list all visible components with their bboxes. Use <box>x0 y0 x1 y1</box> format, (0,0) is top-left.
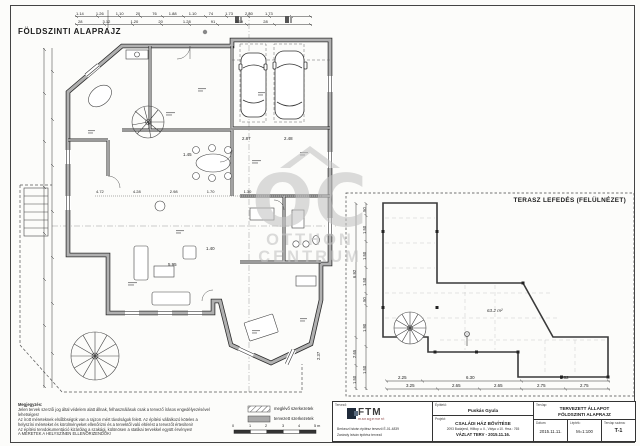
title-block: Tervező: FTM management Berkeczi István … <box>332 401 636 442</box>
scale-bar <box>234 430 316 433</box>
scale-tick: 5 m <box>314 424 320 428</box>
client-label: Építtető: <box>435 403 447 407</box>
notes-block: Megjegyzés: Jelen tervek szerzői jog ált… <box>18 403 230 437</box>
terrace-dim: 3.25 <box>406 383 415 388</box>
client-name: Puskás Gyula <box>433 408 533 413</box>
top-dim-row-1: 1.14 1.26 1.10 20 76 1.88 1.10 74 1.73 2… <box>76 11 314 16</box>
ftm-logo-icon <box>347 408 356 419</box>
left-dimension-chain <box>43 48 54 388</box>
ftm-logo: FTM management <box>347 408 385 421</box>
floor-plan <box>20 10 336 394</box>
terrace-dim: 2.25 <box>398 375 407 380</box>
terrace-posts <box>382 230 610 379</box>
terrace-dim: 2.65 <box>452 383 461 388</box>
terrace-dim: 5.62 <box>560 375 569 380</box>
terrace-dim: 2.75 <box>580 383 589 388</box>
project-address: 2093 Budajenő, Hilltop u. II., Vátya u 1… <box>433 427 533 431</box>
room-dim-living: 5.95 <box>168 262 177 267</box>
terrace-dim-left: 1.50 <box>362 226 367 234</box>
project-phase: VÁZLAT TERV - 2015.11.16. <box>433 432 533 437</box>
title-block-sheet-cell: Tervlap: TERVEZETT ÁLLAPOT FÖLDSZINTI AL… <box>534 402 635 441</box>
spiral-stair-interior <box>132 106 164 138</box>
car-top-view-icons <box>239 51 307 119</box>
scale-cell: Lépték: M=1:100 <box>568 420 602 441</box>
date-value: 2015.11.11. <box>534 429 567 434</box>
plan-title: FÖLDSZINTI ALAPRAJZ <box>18 27 121 36</box>
terrace-area-label: 63.2 m² <box>487 308 503 313</box>
drawing-canvas <box>0 0 640 446</box>
terrace-dim: 6.30 <box>466 375 475 380</box>
scale-tick: 0 <box>232 424 234 428</box>
terrace-dim-left: .50 <box>362 207 367 213</box>
terrace-dim: 2.75 <box>537 383 546 388</box>
sheet-number-cell: Tervlap száma: T-1 <box>602 420 635 441</box>
terrace-roof-outline <box>383 203 608 377</box>
terrace-dim-left: 1.50 <box>362 366 367 374</box>
sheet-number-value: T-1 <box>602 428 635 434</box>
terrace-dim-left: 1.50 <box>352 376 357 384</box>
legend-planned-label: tervezett szerkezetek <box>274 416 314 421</box>
spiral-stair-terrace <box>394 312 426 344</box>
date-label: Dátum: <box>536 421 546 425</box>
room-dim-corridor: 1.40 <box>206 246 215 251</box>
legend-existing-label: meglévő szerkezetek <box>274 406 313 411</box>
scale-label: Lépték: <box>570 421 580 425</box>
terrace-dim-left: 2.65 <box>352 350 357 358</box>
sheet-number-label: Tervlap száma: <box>604 421 625 425</box>
scale-tick: 1 <box>249 424 251 428</box>
terrace-dim-left: 1.50 <box>362 278 367 286</box>
designer-name-1: Berkeczi István építész tervező É-01-483… <box>337 427 399 431</box>
designer-name-2: Zarándy István építész tervező <box>337 433 382 437</box>
date-cell: Dátum: 2015.11.11. <box>534 420 568 441</box>
designer-label: Tervező: <box>335 403 347 407</box>
ftm-logo-subtext: management <box>358 417 385 421</box>
notes-line: Jelen tervek szerzői jog által védelem a… <box>18 408 230 413</box>
room-dim-bay: 2.37 <box>316 352 321 360</box>
room-stamps <box>88 88 308 334</box>
terrace-dim-left: 6.92 <box>352 270 357 278</box>
spiral-stair-exterior <box>71 332 119 380</box>
room-dim-dining: 2.48 <box>284 136 293 141</box>
scale-tick: 2 <box>265 424 267 428</box>
scale-bar-numbers: 0 1 2 3 4 5 m <box>232 424 332 429</box>
terrace-dim-left: 1.50 <box>362 252 367 260</box>
title-block-client-cell: Építtető: Puskás Gyula Projekt: CSALÁDI … <box>433 402 534 441</box>
terrace-title: TERASZ LEFEDÉS (FELÜLNÉZET) <box>470 197 626 204</box>
terrace-dim-left: 1.90 <box>362 324 367 332</box>
terrace-dim-left: .50 <box>362 297 367 303</box>
top-dim-row-2: 28 3.12 1.20 20 1.28 91 3.19 28 <box>78 19 316 24</box>
terrace-dim: 2.65 <box>494 383 503 388</box>
mid-dim-row: 4.72 4.28 2.98 1.70 1.30 <box>96 189 326 194</box>
exterior-stairs <box>24 188 48 236</box>
ftm-logo-text: FTM <box>358 408 385 417</box>
title-block-designer-cell: Tervező: FTM management Berkeczi István … <box>333 402 433 441</box>
scale-value: M=1:100 <box>568 429 601 434</box>
drawing-sheet: FÖLDSZINTI ALAPRAJZ 1.14 1.26 1.10 20 76… <box>0 0 640 446</box>
room-dim-kitchen: 1.45 <box>183 152 192 157</box>
room-dim-hall: 2.87 <box>242 136 251 141</box>
scale-tick: 4 <box>298 424 300 428</box>
project-name: CSALÁDI HÁZ BŐVÍTÉSE <box>433 421 533 426</box>
sheet-title-2: FÖLDSZINTI ALAPRAJZ <box>534 412 635 417</box>
terrace-panel <box>346 193 634 396</box>
notes-line: A MÉRETEK A HELYSZÍNEN ELLENŐRIZENDŐK! <box>18 432 230 437</box>
scale-tick: 3 <box>282 424 284 428</box>
sheet-title-1: TERVEZETT ÁLLAPOT <box>534 406 635 411</box>
